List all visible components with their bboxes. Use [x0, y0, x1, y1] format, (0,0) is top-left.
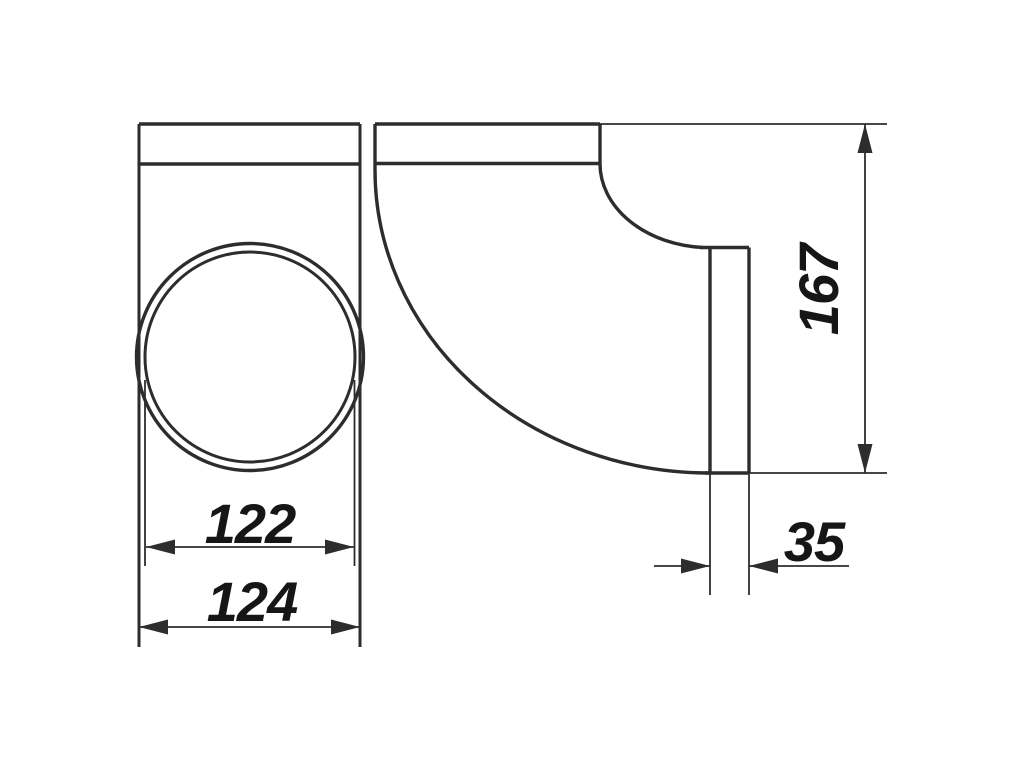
dim-label-overall-height: 167 — [787, 241, 850, 335]
dimension-overall-height: 167 — [600, 124, 887, 473]
arrowhead-left-icon — [749, 559, 778, 574]
arrowhead-left-icon — [146, 540, 175, 555]
side-view — [375, 124, 749, 473]
elbow-outer-curve — [375, 170, 710, 473]
arrowhead-left-icon — [139, 620, 168, 635]
dim-label-outer-width: 124 — [207, 570, 298, 633]
outer-pipe-circle — [137, 244, 364, 471]
dim-label-inner-diameter: 122 — [205, 492, 296, 555]
duct-elbow-technical-drawing: 122 124 167 35 — [0, 0, 1024, 768]
technical-drawing-canvas: 122 124 167 35 — [0, 0, 1024, 768]
dim-label-connector-depth: 35 — [784, 510, 846, 573]
arrowhead-up-icon — [858, 124, 873, 153]
arrowhead-down-icon — [858, 444, 873, 473]
arrowhead-right-icon — [325, 540, 354, 555]
dimension-connector-depth: 35 — [654, 473, 849, 595]
arrowhead-right-icon — [331, 620, 360, 635]
front-view — [137, 124, 364, 647]
dimension-outer-width: 124 — [139, 570, 360, 635]
arrowhead-right-icon — [681, 559, 710, 574]
elbow-inner-curve — [600, 164, 703, 248]
inner-pipe-circle — [145, 252, 355, 462]
dimension-inner-diameter: 122 — [145, 380, 355, 566]
